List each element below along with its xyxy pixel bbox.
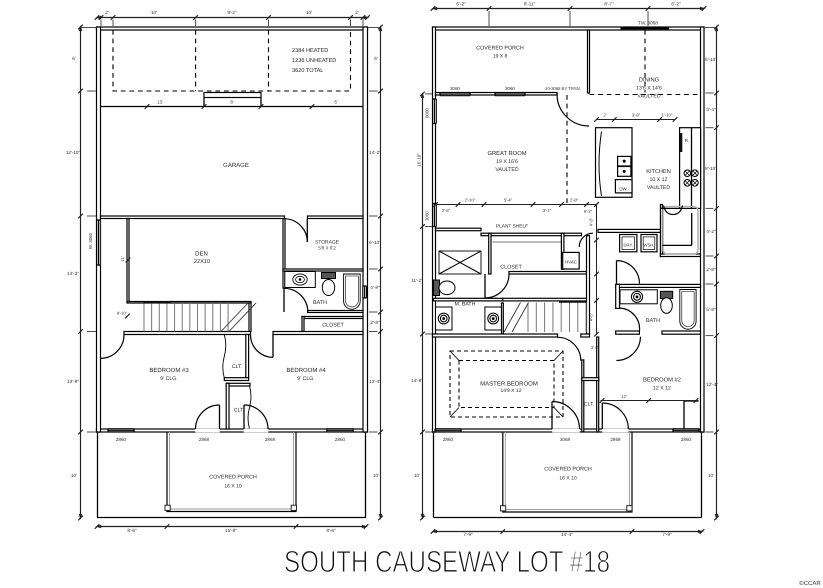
svg-text:PLANT SHELF: PLANT SHELF [496,224,528,230]
svg-text:22X10: 22X10 [194,259,210,265]
svg-text:3'-8": 3'-8" [632,113,641,118]
svg-text:2': 2' [603,113,606,118]
svg-text:6': 6' [72,56,76,61]
svg-text:M. BATH: M. BATH [455,302,476,308]
svg-text:WSH.: WSH. [644,243,655,248]
svg-text:HVAC: HVAC [565,260,577,265]
svg-text:14'9 X 12: 14'9 X 12 [501,388,522,394]
svg-text:16'-10": 16'-10" [417,153,422,167]
svg-text:10': 10' [414,473,420,478]
svg-text:2'-10": 2'-10" [465,198,476,203]
svg-text:19 X 8: 19 X 8 [493,54,508,60]
svg-text:3620 TOTAL: 3620 TOTAL [292,68,323,74]
svg-text:MASTER BEDROOM: MASTER BEDROOM [480,381,538,388]
svg-text:1236 UNHEATED: 1236 UNHEATED [292,58,336,64]
svg-text:3060: 3060 [505,86,515,91]
svg-text:9'-10": 9'-10" [117,311,128,316]
svg-text:16 X 10: 16 X 10 [559,476,576,482]
svg-text:6'-10": 6'-10" [705,57,717,62]
svg-text:DRY.: DRY. [624,243,633,248]
svg-text:VAULTED: VAULTED [495,167,518,173]
svg-text:8'-10": 8'-10" [705,166,717,171]
svg-text:6'-10": 6'-10" [369,240,381,245]
svg-text:13'-4": 13'-4" [369,379,381,384]
svg-text:DEN: DEN [195,251,208,258]
svg-text:COVERED PORCH: COVERED PORCH [476,46,524,52]
svg-text:3'-4": 3'-4" [706,107,716,112]
svg-text:1'-10": 1'-10" [662,113,673,118]
svg-text:8'-7": 8'-7" [604,2,614,7]
svg-text:CLOSET: CLOSET [500,265,522,271]
svg-text:10': 10' [306,10,312,15]
svg-text:14'-8": 14'-8" [411,378,423,383]
svg-text:10 X 12: 10 X 12 [650,177,668,183]
svg-text:6'-2": 6'-2" [671,2,681,7]
svg-text:CLT.: CLT. [234,408,244,414]
svg-text:2868: 2868 [610,437,621,442]
svg-text:GREAT ROOM: GREAT ROOM [487,150,526,157]
svg-text:10': 10' [151,10,157,15]
svg-text:2': 2' [105,10,109,15]
svg-text:14'-3": 14'-3" [67,271,79,276]
svg-text:12'-10": 12'-10" [66,150,81,155]
svg-text:DINING: DINING [639,77,660,84]
svg-text:4'-2": 4'-2" [706,229,716,234]
svg-text:2860: 2860 [443,437,454,442]
svg-text:DW.: DW. [619,187,627,192]
svg-text:CLT.: CLT. [584,402,594,408]
svg-text:8060: 8060 [425,108,430,118]
svg-text:VAULTED: VAULTED [637,94,660,100]
svg-text:4'-3": 4'-3" [589,217,594,226]
svg-text:8'-6": 8'-6" [326,528,336,533]
svg-text:8'-11": 8'-11" [524,2,536,7]
svg-text:BEDROOM #4: BEDROOM #4 [286,367,326,374]
svg-text:9'-2": 9'-2" [584,209,593,214]
svg-text:9' CLG.: 9' CLG. [160,376,177,382]
svg-text:COVERED PORCH: COVERED PORCH [209,475,257,481]
svg-text:8': 8' [230,100,233,105]
svg-text:15'-8": 15'-8" [225,528,237,533]
svg-text:2'-6": 2'-6" [442,208,451,213]
svg-text:11': 11' [120,256,125,261]
svg-text:2868: 2868 [265,437,276,442]
svg-text:4'-8": 4'-8" [370,285,380,290]
svg-text:R.: R. [685,138,689,143]
svg-text:6': 6' [334,100,337,105]
svg-text:11'-2": 11'-2" [411,278,423,283]
svg-text:16 X 10: 16 X 10 [224,484,241,490]
svg-text:10-3068 BY TRSN.: 10-3068 BY TRSN. [545,86,581,91]
svg-text:10': 10' [373,473,379,478]
svg-text:6'-2": 6'-2" [456,2,466,7]
svg-text:TW. 3068: TW. 3068 [638,21,658,26]
svg-text:5'-4": 5'-4" [504,198,513,203]
svg-text:5'8 X 6'2: 5'8 X 6'2 [318,246,336,251]
svg-text:BEDROOM #2: BEDROOM #2 [643,377,681,384]
svg-text:BATH: BATH [646,318,660,324]
svg-text:3'-0": 3'-0" [591,345,600,350]
svg-text:12 X 12: 12 X 12 [653,386,671,392]
svg-text:BEDROOM #3: BEDROOM #3 [149,367,189,374]
svg-text:2'-8": 2'-8" [706,267,716,272]
svg-text:14'-2": 14'-2" [369,150,381,155]
svg-text:5'-8": 5'-8" [706,307,716,312]
svg-text:GARAGE: GARAGE [223,162,249,169]
svg-text:10': 10' [71,473,77,478]
svg-text:19 X 16'6: 19 X 16'6 [496,159,518,165]
svg-text:BATH: BATH [313,300,327,306]
svg-text:12': 12' [621,394,627,399]
svg-text:2'-8": 2'-8" [570,198,579,203]
svg-text:KITCHEN: KITCHEN [646,169,671,175]
svg-text:3060: 3060 [450,86,460,91]
svg-text:©CCAR: ©CCAR [799,580,821,587]
svg-text:6': 6' [374,56,378,61]
svg-text:CLT.: CLT. [232,364,242,370]
svg-text:12'-4": 12'-4" [706,382,718,387]
svg-text:13'-8": 13'-8" [67,379,79,384]
svg-text:2860: 2860 [335,437,346,442]
svg-text:2'-8": 2'-8" [370,320,380,325]
svg-text:SOUTH CAUSEWAY LOT #18: SOUTH CAUSEWAY LOT #18 [284,545,610,580]
svg-text:7'-9": 7'-9" [662,532,672,537]
svg-text:3060: 3060 [425,211,430,221]
svg-text:13': 13' [157,100,163,105]
svg-text:2868: 2868 [199,437,210,442]
svg-text:9'-2": 9'-2" [227,10,237,15]
svg-text:10': 10' [708,473,714,478]
svg-text:7'-9": 7'-9" [463,532,473,537]
svg-text:W. 3060: W. 3060 [88,232,93,249]
svg-text:VAULTED: VAULTED [647,185,670,191]
svg-text:2': 2' [355,10,359,15]
svg-text:COVERED PORCH: COVERED PORCH [544,467,592,473]
svg-text:14'-4": 14'-4" [561,532,573,537]
svg-text:3068: 3068 [560,437,571,442]
svg-text:CLOSET: CLOSET [322,323,344,329]
svg-text:9' CLG.: 9' CLG. [297,376,314,382]
svg-text:3'-1": 3'-1" [543,208,552,213]
svg-text:2860: 2860 [681,437,692,442]
svg-text:2384 HEATED: 2384 HEATED [292,48,328,54]
svg-text:13'6 X 14'6: 13'6 X 14'6 [636,86,662,92]
svg-text:8'-6": 8'-6" [127,528,137,533]
svg-text:4'-5": 4'-5" [589,312,594,321]
svg-text:2860: 2860 [116,437,127,442]
